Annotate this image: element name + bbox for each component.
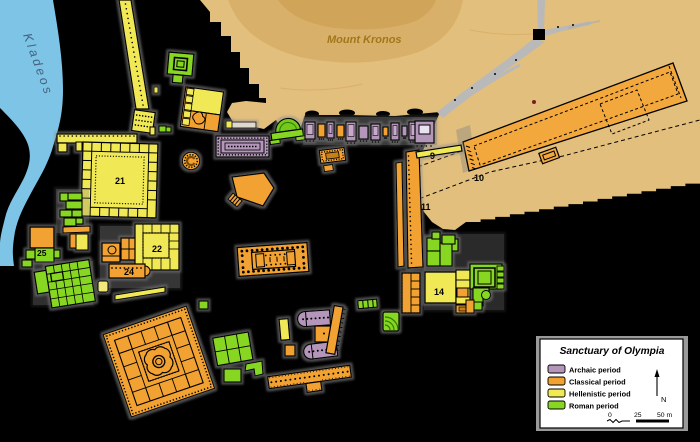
svg-text:Hellenistic period: Hellenistic period [569, 389, 631, 398]
svg-text:10: 10 [474, 173, 484, 183]
svg-text:21: 21 [115, 176, 125, 186]
svg-text:24: 24 [124, 267, 134, 277]
svg-text:0: 0 [608, 412, 612, 419]
svg-text:Archaic period: Archaic period [569, 365, 621, 374]
svg-text:Mount Kronos: Mount Kronos [327, 34, 402, 46]
svg-text:9: 9 [430, 151, 435, 161]
svg-text:Classical period: Classical period [569, 377, 626, 386]
svg-text:25: 25 [634, 412, 642, 419]
svg-text:N: N [661, 395, 666, 404]
svg-text:Roman period: Roman period [569, 401, 619, 410]
svg-text:11: 11 [421, 202, 431, 212]
svg-text:14: 14 [434, 287, 444, 297]
svg-text:25: 25 [37, 248, 47, 258]
svg-text:50 m: 50 m [657, 412, 672, 419]
svg-text:22: 22 [152, 244, 162, 254]
svg-text:Sanctuary of Olympia: Sanctuary of Olympia [560, 346, 665, 357]
